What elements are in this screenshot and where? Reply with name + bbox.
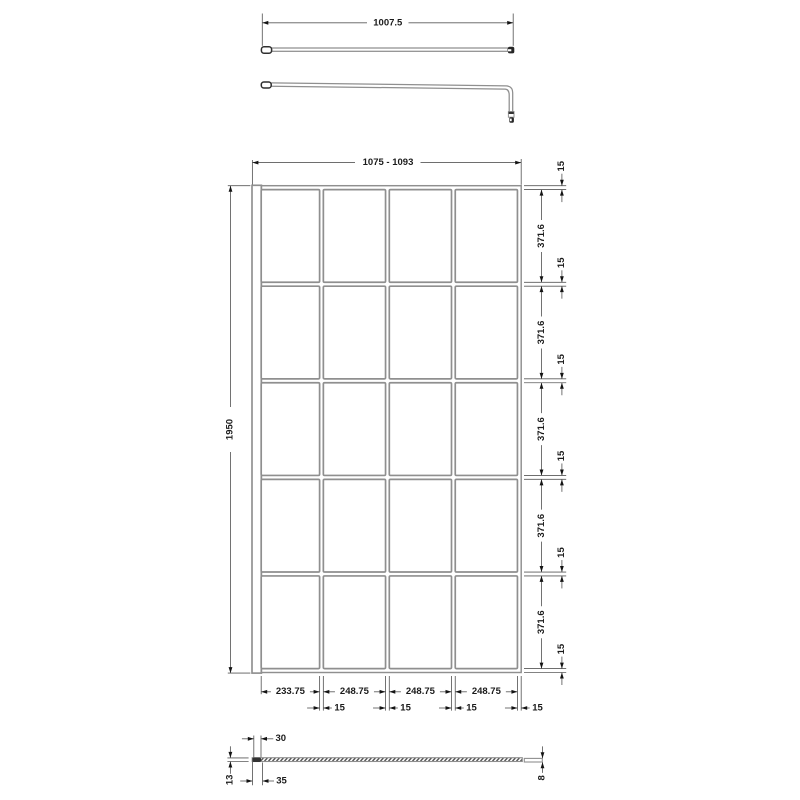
svg-text:8: 8 [537, 775, 548, 780]
svg-text:248.75: 248.75 [472, 686, 502, 697]
svg-text:233.75: 233.75 [276, 686, 306, 697]
svg-text:371.6: 371.6 [536, 321, 547, 345]
svg-text:15: 15 [556, 643, 567, 654]
svg-text:371.6: 371.6 [536, 417, 547, 441]
svg-text:1075 - 1093: 1075 - 1093 [363, 157, 414, 168]
svg-text:1007.5: 1007.5 [373, 17, 403, 28]
svg-text:371.6: 371.6 [536, 610, 547, 634]
svg-text:15: 15 [556, 450, 567, 461]
svg-text:15: 15 [556, 353, 567, 364]
svg-text:248.75: 248.75 [406, 686, 436, 697]
svg-text:15: 15 [532, 702, 543, 713]
svg-text:15: 15 [466, 702, 477, 713]
svg-text:15: 15 [334, 702, 345, 713]
svg-text:1950: 1950 [225, 419, 236, 440]
svg-text:371.6: 371.6 [536, 224, 547, 248]
svg-text:371.6: 371.6 [536, 514, 547, 538]
svg-text:15: 15 [556, 160, 567, 171]
svg-text:15: 15 [400, 702, 411, 713]
svg-text:13: 13 [225, 775, 236, 786]
svg-text:15: 15 [556, 547, 567, 558]
svg-text:248.75: 248.75 [340, 686, 370, 697]
svg-text:15: 15 [556, 257, 567, 268]
svg-text:30: 30 [276, 733, 287, 744]
svg-text:35: 35 [276, 775, 287, 786]
